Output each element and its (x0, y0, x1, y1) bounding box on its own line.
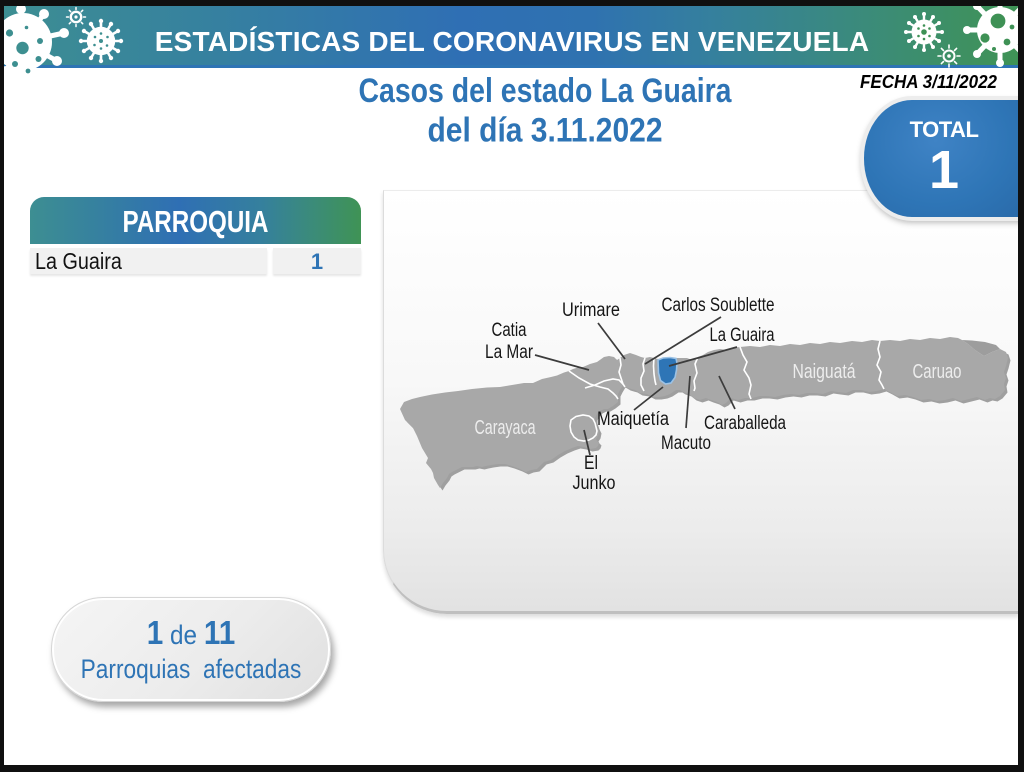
svg-text:Naiguatá: Naiguatá (793, 361, 857, 383)
svg-text:La Guaira: La Guaira (710, 325, 775, 346)
svg-text:Carayaca: Carayaca (475, 417, 537, 439)
svg-text:Macuto: Macuto (661, 433, 711, 454)
svg-text:Junko: Junko (573, 473, 616, 494)
svg-text:del día 3.11.2022: del día 3.11.2022 (428, 112, 663, 150)
svg-text:Maiquetía: Maiquetía (597, 409, 669, 430)
svg-text:Urimare: Urimare (562, 300, 620, 321)
svg-text:Catia: Catia (492, 320, 527, 341)
svg-text:El: El (584, 453, 598, 474)
svg-text:Carlos Soublette: Carlos Soublette (662, 295, 775, 316)
svg-text:Caraballeda: Caraballeda (704, 413, 786, 434)
svg-text:La Mar: La Mar (485, 342, 534, 363)
svg-text:FECHA 3/11/2022: FECHA 3/11/2022 (860, 72, 997, 92)
svg-text:Caruao: Caruao (913, 361, 962, 383)
svg-text:Casos del estado La Guaira: Casos del estado La Guaira (359, 72, 733, 110)
